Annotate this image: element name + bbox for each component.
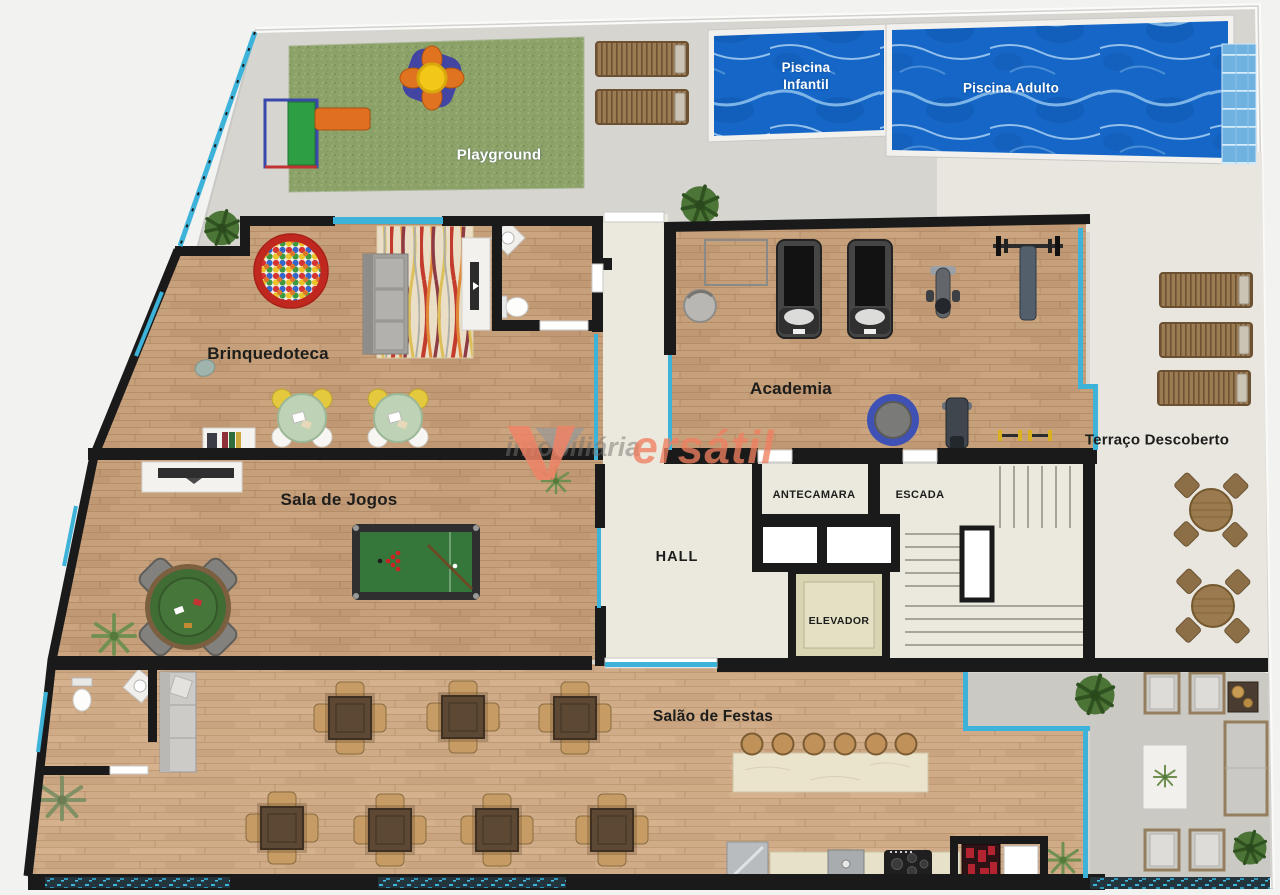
terrace-armchair (1145, 830, 1179, 870)
party-sofa (160, 672, 196, 772)
coffee-table (1143, 745, 1187, 809)
toilet (498, 296, 528, 318)
kids-table (272, 389, 332, 447)
academia-label: Academia (750, 379, 832, 399)
terraco-descoberto-label: Terraço Descoberto (1085, 432, 1229, 449)
poker-table (136, 555, 239, 658)
pool-steps (1222, 44, 1256, 164)
bar-counter (733, 753, 928, 792)
sofa (363, 254, 408, 354)
sun-lounger (596, 90, 688, 124)
piscina-adulto-label: Piscina Adulto (963, 81, 1059, 96)
brinquedoteca-label: Brinquedoteca (207, 344, 329, 364)
antecamara-label: ANTECAMARA (773, 489, 856, 501)
escada-label: ESCADA (896, 489, 945, 501)
corridor-floor (603, 214, 668, 464)
terrace-armchair (1190, 830, 1224, 870)
playground-label: Playground (457, 147, 542, 164)
piscina-infantil-line2: Infantil (782, 77, 831, 94)
terrace-armchair (1190, 673, 1224, 713)
treadmill (848, 240, 892, 338)
piscina-adulto (886, 15, 1256, 164)
plant (681, 186, 719, 224)
floor-plan: Playground Piscina Infantil Piscina Adul… (0, 0, 1280, 895)
trampoline (867, 394, 919, 446)
kids-table (368, 389, 428, 447)
hall-label: HALL (656, 549, 699, 565)
gym-ball (684, 290, 716, 322)
leg-machine (942, 398, 972, 450)
plant (1234, 832, 1267, 865)
plant (205, 211, 240, 246)
sun-lounger (1160, 273, 1252, 307)
sun-lounger (1158, 371, 1250, 405)
sala-de-jogos-label: Sala de Jogos (281, 490, 398, 510)
salao-de-festas-label: Salão de Festas (653, 708, 773, 726)
treadmill (777, 240, 821, 338)
sun-lounger (596, 42, 688, 76)
ball-pit (254, 234, 328, 308)
antechamber-closets (762, 526, 892, 564)
tv-panel (462, 238, 490, 330)
terrace-sofa (1225, 722, 1267, 815)
snooker-table (352, 524, 480, 600)
terrace-armchair (1145, 673, 1179, 713)
fire-grill-table (1228, 682, 1258, 712)
sun-lounger (1160, 323, 1252, 357)
piscina-infantil-line1: Piscina (782, 60, 831, 77)
brinquedoteca-floor (94, 222, 603, 452)
piscina-infantil-label: Piscina Infantil (782, 60, 831, 94)
elevador-label: ELEVADOR (809, 615, 870, 627)
plant (1076, 676, 1115, 715)
sideboard-tv (142, 462, 242, 492)
